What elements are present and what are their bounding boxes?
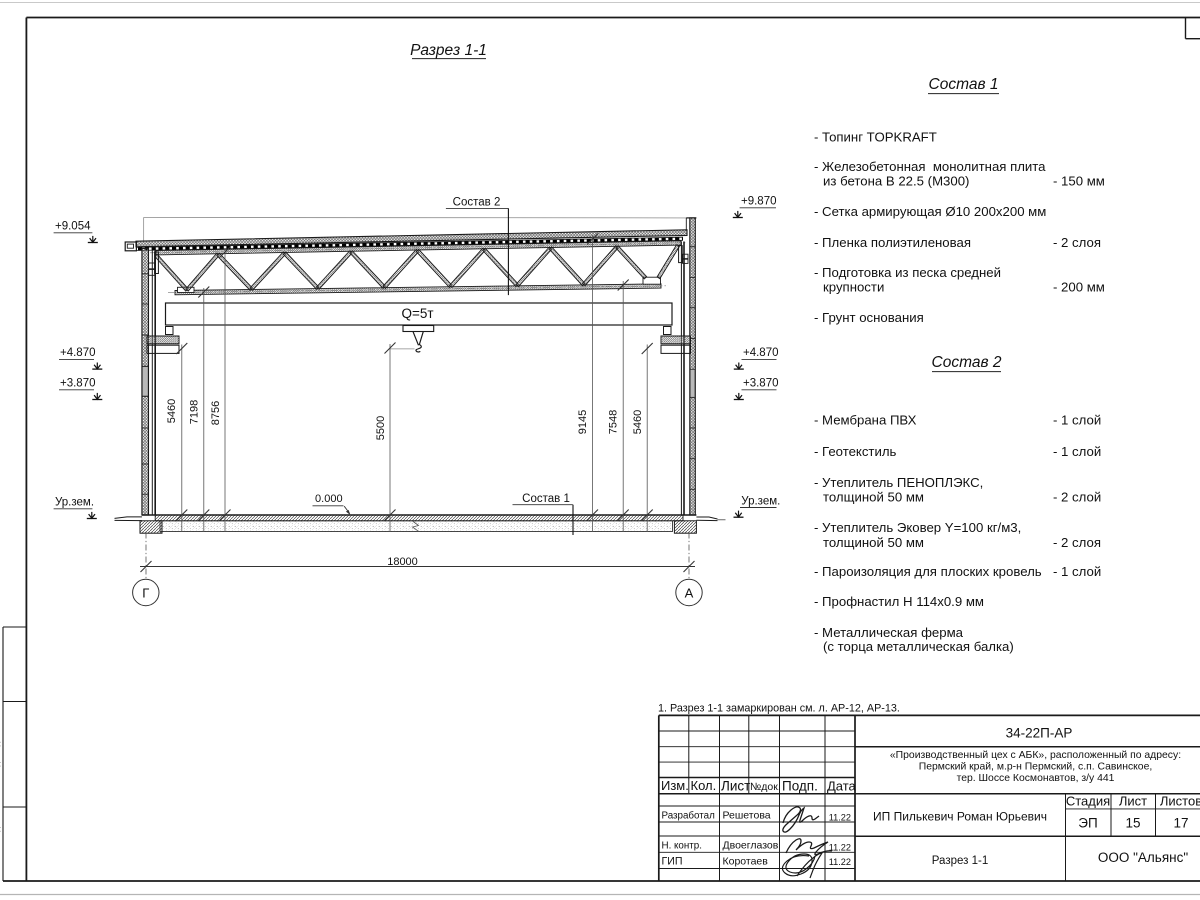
svg-text:Стадия: Стадия (1066, 794, 1110, 809)
svg-text:толщиной 50 мм: толщиной 50 мм (823, 490, 924, 505)
svg-text:Состав 2: Состав 2 (932, 354, 1002, 371)
svg-text:А: А (685, 585, 694, 600)
svg-text:+9.870: +9.870 (741, 196, 777, 208)
svg-text:- Железобетонная монолитная п: - Железобетонная монолитная плита (814, 159, 1046, 174)
svg-text:- 200 мм: - 200 мм (1053, 280, 1105, 295)
svg-text:7198: 7198 (188, 400, 200, 424)
svg-text:- Пленка полиэтиленовая: - Пленка полиэтиленовая (814, 235, 971, 250)
svg-text:5500: 5500 (375, 416, 387, 440)
svg-text:Пермский край, м.р-н Пермский,: Пермский край, м.р-н Пермский, с.п. Сави… (919, 761, 1153, 772)
svg-text:- Утеплитель Эковер Y=100 кг/м: - Утеплитель Эковер Y=100 кг/м3, (814, 520, 1021, 535)
svg-text:+9.054: +9.054 (55, 221, 91, 233)
svg-text:11.22: 11.22 (829, 842, 851, 852)
svg-text:+4.870: +4.870 (743, 347, 779, 359)
svg-text:1. Разрез 1-1 замаркирован см.: 1. Разрез 1-1 замаркирован см. л. АР-12,… (658, 703, 900, 715)
svg-text:11.22: 11.22 (829, 857, 851, 867)
svg-text:Листов: Листов (1160, 794, 1200, 809)
svg-text:Состав 1: Состав 1 (929, 76, 999, 93)
svg-text:15: 15 (1125, 816, 1140, 831)
svg-text:- Подготовка из песка средней: - Подготовка из песка средней (814, 265, 1001, 280)
svg-text:Состав 1: Состав 1 (522, 493, 570, 505)
svg-text:толщиной 50 мм: толщиной 50 мм (823, 535, 924, 550)
svg-text:- Геотекстиль: - Геотекстиль (814, 444, 897, 459)
svg-text:тер. Шоссе Космонавтов, з/у 44: тер. Шоссе Космонавтов, з/у 441 (957, 773, 1115, 784)
svg-text:- 2 слой: - 2 слой (1053, 490, 1101, 505)
svg-text:- 2 слоя: - 2 слоя (1053, 235, 1101, 250)
svg-text:Взам. инв. №: Взам. инв. № (0, 639, 1, 689)
svg-text:34-22П-АР: 34-22П-АР (1006, 726, 1073, 741)
svg-text:Г: Г (142, 585, 149, 600)
svg-text:18000: 18000 (387, 556, 418, 568)
svg-text:Подп.: Подп. (782, 779, 818, 794)
svg-text:17: 17 (1173, 816, 1188, 831)
svg-text:- 2 слоя: - 2 слоя (1053, 535, 1101, 550)
svg-text:7548: 7548 (607, 410, 619, 434)
svg-text:5460: 5460 (632, 410, 644, 434)
svg-text:Разработал: Разработал (662, 811, 716, 822)
svg-text:Двоеглазов: Двоеглазов (723, 839, 779, 851)
svg-text:9145: 9145 (577, 410, 589, 434)
svg-text:- Профнастил Н 114х0.9 мм: - Профнастил Н 114х0.9 мм (814, 594, 984, 609)
svg-text:Ур.зем.: Ур.зем. (55, 497, 94, 509)
svg-text:- Сетка армирующая Ø10 200х200: - Сетка армирующая Ø10 200х200 мм (814, 204, 1046, 219)
svg-text:ЭП: ЭП (1078, 816, 1097, 831)
svg-text:Инв. № подл.: Инв. № подл. (0, 820, 1, 870)
svg-text:Н. контр.: Н. контр. (662, 840, 702, 851)
svg-text:Дата: Дата (827, 779, 857, 794)
svg-text:Q=5т: Q=5т (401, 306, 433, 321)
svg-text:- 1 слой: - 1 слой (1053, 444, 1101, 459)
svg-text:№док.: №док. (750, 781, 781, 793)
svg-text:Коротаев: Коротаев (723, 855, 769, 867)
svg-text:Состав 2: Состав 2 (453, 196, 501, 208)
svg-text:5460: 5460 (166, 399, 178, 423)
svg-text:- Металлическая ферма: - Металлическая ферма (814, 625, 964, 640)
svg-text:- Топинг TOPKRAFT: - Топинг TOPKRAFT (814, 130, 937, 145)
svg-text:«Производственный цех с АБК»,: «Производственный цех с АБК», расположен… (890, 750, 1181, 761)
svg-text:Решетова: Решетова (723, 810, 771, 822)
svg-text:из бетона В 22.5 (М300): из бетона В 22.5 (М300) (823, 174, 969, 189)
svg-text:- 1 слой: - 1 слой (1053, 564, 1101, 579)
svg-text:Разрез 1-1: Разрез 1-1 (410, 42, 487, 59)
svg-text:Изм.: Изм. (661, 778, 689, 793)
svg-text:+3.870: +3.870 (743, 378, 779, 390)
svg-text:Кол.: Кол. (691, 778, 717, 793)
svg-text:(с торца металлическая балка): (с торца металлическая балка) (823, 639, 1014, 654)
svg-text:+4.870: +4.870 (60, 347, 96, 359)
svg-text:Лист: Лист (1119, 794, 1147, 809)
svg-text:Разрез 1-1: Разрез 1-1 (932, 855, 988, 867)
svg-text:- 1 слой: - 1 слой (1053, 413, 1101, 428)
svg-text:11.22: 11.22 (829, 813, 851, 823)
svg-text:- Пароизоляция для плоских кро: - Пароизоляция для плоских кровель (814, 564, 1042, 579)
svg-text:- Мембрана ПВХ: - Мембрана ПВХ (814, 413, 917, 428)
svg-text:ГИП: ГИП (662, 856, 683, 868)
svg-text:- 150 мм: - 150 мм (1053, 174, 1105, 189)
svg-text:Подп. и дата: Подп. и дата (0, 729, 1, 777)
svg-text:- Грунт основания: - Грунт основания (814, 310, 924, 325)
svg-text:Ур.зем.: Ур.зем. (741, 495, 780, 507)
svg-text:крупности: крупности (823, 280, 884, 295)
svg-text:Лист: Лист (721, 779, 750, 794)
svg-text:8756: 8756 (210, 401, 222, 425)
svg-text:+3.870: +3.870 (60, 378, 96, 390)
svg-text:ООО "Альянс": ООО "Альянс" (1098, 850, 1188, 865)
svg-text:ИП Пилькевич Роман Юрьевич: ИП Пилькевич Роман Юрьевич (873, 810, 1047, 824)
svg-text:- Утеплитель ПЕНОПЛЭКС,: - Утеплитель ПЕНОПЛЭКС, (814, 475, 983, 490)
svg-text:0.000: 0.000 (315, 493, 343, 505)
